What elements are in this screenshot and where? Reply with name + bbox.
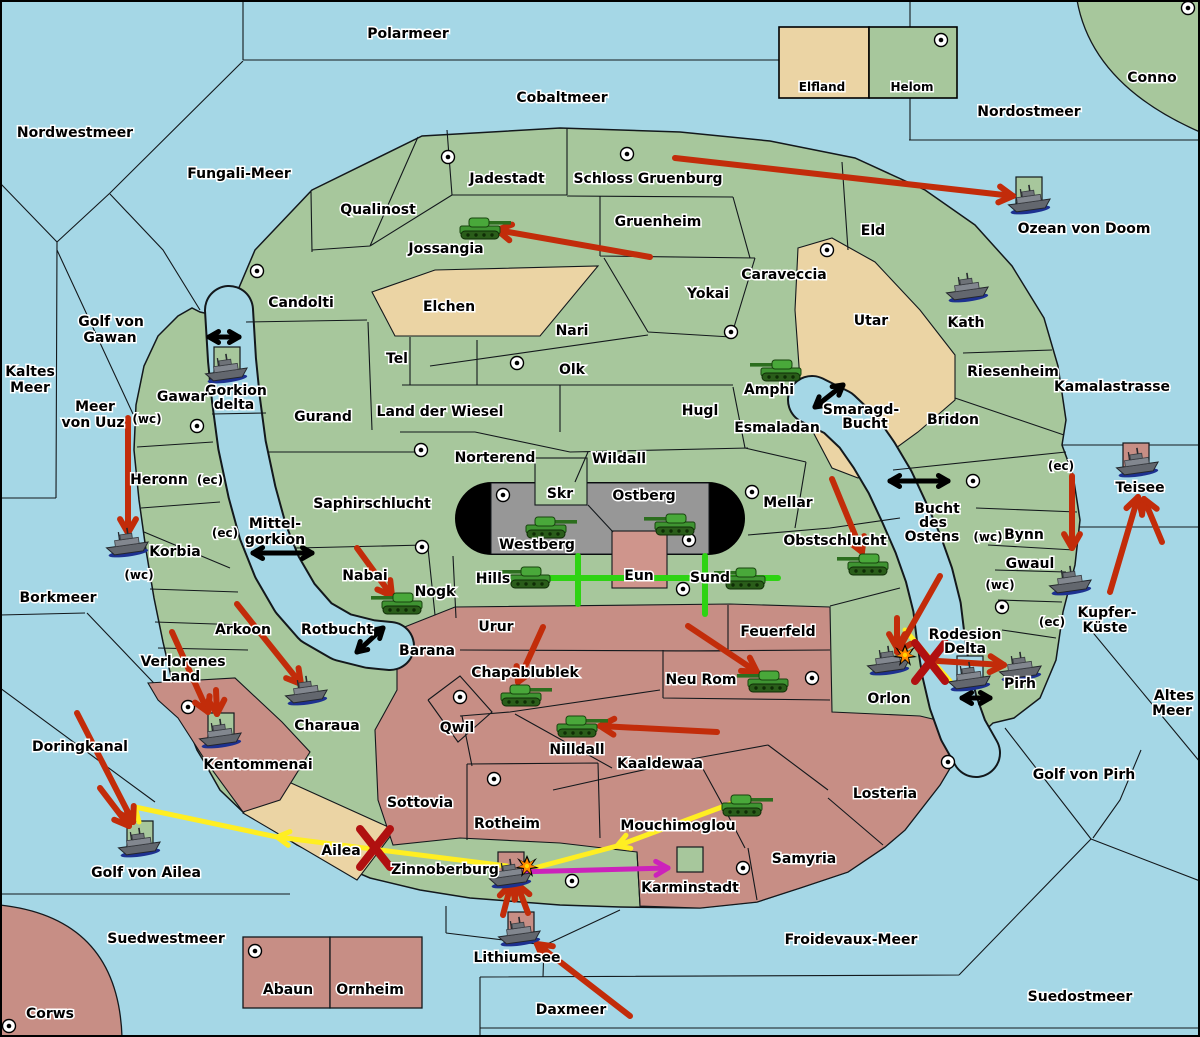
label-zinnoberburg: Zinnoberburg xyxy=(391,862,499,878)
game-map-window: PolarmeerNordwestmeerCobaltmeerNordostme… xyxy=(0,0,1200,1037)
label-gurand: Gurand xyxy=(294,409,352,425)
label-barana: Barana xyxy=(399,643,455,659)
label-nordostmeer: Nordostmeer xyxy=(977,104,1080,120)
label-tel: Tel xyxy=(386,351,408,367)
label-borkmeer: Borkmeer xyxy=(20,590,97,606)
label-ec-heronn: (ec) xyxy=(197,473,223,487)
city-marker-2 xyxy=(935,34,948,47)
label-bucht-des-ostens-3: Ostens xyxy=(905,529,960,545)
label-kath: Kath xyxy=(948,315,985,331)
label-candolti: Candolti xyxy=(268,295,334,311)
label-daxmeer: Daxmeer xyxy=(536,1002,607,1018)
label-amphi: Amphi xyxy=(744,382,794,398)
city-marker-5 xyxy=(511,357,524,370)
label-nari: Nari xyxy=(556,323,589,339)
label-ec-pirh: (ec) xyxy=(1039,615,1065,629)
label-verlorenes-land-2: Land xyxy=(162,669,200,685)
label-olk: Olk xyxy=(559,362,586,378)
label-smaragd-bucht-2: Bucht xyxy=(842,416,888,432)
city-marker-25 xyxy=(488,773,501,786)
label-mellar: Mellar xyxy=(763,495,812,511)
label-karminstadt: Karminstadt xyxy=(641,880,739,896)
label-nilldall: Nilldall xyxy=(549,742,604,758)
label-mittelgorkion-1: Mittel- xyxy=(249,516,301,532)
label-wc-korbia: (wc) xyxy=(124,568,153,582)
label-ostberg: Ostberg xyxy=(612,488,675,504)
label-golf-von-ailea: Golf von Ailea xyxy=(91,865,201,881)
city-marker-8 xyxy=(415,444,428,457)
label-verlorenes-land-1: Verlorenes xyxy=(140,654,225,670)
label-elchen: Elchen xyxy=(423,299,475,315)
city-marker-13 xyxy=(454,691,467,704)
label-ailea: Ailea xyxy=(321,843,360,859)
city-marker-14 xyxy=(967,475,980,488)
label-schloss-gruenburg: Schloss Gruenburg xyxy=(573,171,722,187)
city-marker-3 xyxy=(1182,2,1195,15)
label-gawar: Gawar xyxy=(157,389,207,405)
label-meer-von-uuz-2: von Uuz xyxy=(61,415,124,431)
label-conno: Conno xyxy=(1127,70,1177,86)
label-sottovia: Sottovia xyxy=(387,795,453,811)
label-saphirschlucht: Saphirschlucht xyxy=(313,496,431,512)
label-meer-von-uuz-1: Meer xyxy=(75,399,115,415)
arrowhead xyxy=(380,628,383,638)
label-kaaldewaa: Kaaldewaa xyxy=(617,756,703,772)
label-abaun: Abaun xyxy=(263,982,313,998)
label-korbia: Korbia xyxy=(149,544,200,560)
label-neu-rom: Neu Rom xyxy=(665,672,736,688)
label-fungali-meer: Fungali-Meer xyxy=(187,166,291,182)
city-marker-21 xyxy=(942,756,955,769)
label-legend-helom: Helom xyxy=(890,80,933,94)
label-rodesion-delta-2: Delta xyxy=(944,641,986,657)
label-mouchimoglou: Mouchimoglou xyxy=(620,818,735,834)
label-lithiumsee: Lithiumsee xyxy=(473,950,560,966)
label-losteria: Losteria xyxy=(853,786,917,802)
label-charaua: Charaua xyxy=(294,718,359,734)
label-pirh: Pirh xyxy=(1004,676,1036,692)
label-golf-von-gawan-2: Gawan xyxy=(83,330,136,346)
city-marker-22 xyxy=(249,945,262,958)
city-marker-12 xyxy=(416,541,429,554)
label-teisee: Teisee xyxy=(1115,480,1164,496)
label-riesenheim: Riesenheim xyxy=(967,364,1059,380)
city-marker-15 xyxy=(996,601,1009,614)
label-samyria: Samyria xyxy=(772,851,836,867)
label-eun: Eun xyxy=(624,568,654,584)
label-norterend: Norterend xyxy=(455,450,536,466)
label-wc-gawar: (wc) xyxy=(132,412,161,426)
label-ozean-von-doom: Ozean von Doom xyxy=(1018,221,1151,237)
city-marker-7 xyxy=(821,244,834,257)
city-marker-11 xyxy=(677,583,690,596)
city-marker-6 xyxy=(725,326,738,339)
label-doringkanal: Doringkanal xyxy=(32,739,128,755)
label-arkoon: Arkoon xyxy=(215,622,271,638)
label-cobaltmeer: Cobaltmeer xyxy=(516,90,607,106)
city-marker-0 xyxy=(442,151,455,164)
label-ec-bynn-north: (ec) xyxy=(1048,459,1074,473)
city-marker-1 xyxy=(621,148,634,161)
label-qualinost: Qualinost xyxy=(340,202,416,218)
label-gruenheim: Gruenheim xyxy=(615,214,702,230)
label-rotbucht: Rotbucht xyxy=(301,622,373,638)
label-wc-gwaul: (wc) xyxy=(985,578,1014,592)
label-kaltes-meer-2: Meer xyxy=(10,380,50,396)
label-wc-bynn: (wc) xyxy=(973,530,1002,544)
label-skr: Skr xyxy=(547,486,573,502)
label-jossangia: Jossangia xyxy=(407,241,483,257)
city-marker-20 xyxy=(737,862,750,875)
label-utar: Utar xyxy=(854,313,889,329)
label-kupfer-kueste-1: Kupfer- xyxy=(1078,605,1137,621)
label-land-der-wiesel: Land der Wiesel xyxy=(377,404,504,420)
label-mittelgorkion-2: gorkion xyxy=(245,532,305,548)
label-westberg: Westberg xyxy=(499,537,575,553)
label-orlon: Orlon xyxy=(867,691,910,707)
label-froidevaux-meer: Froidevaux-Meer xyxy=(785,932,918,948)
label-golf-von-pirh: Golf von Pirh xyxy=(1033,767,1135,783)
label-urur: Urur xyxy=(478,619,513,635)
label-ornheim: Ornheim xyxy=(336,982,404,998)
label-bridon: Bridon xyxy=(927,412,979,428)
arrowhead xyxy=(357,642,360,652)
label-bynn: Bynn xyxy=(1004,527,1044,543)
city-marker-9 xyxy=(497,489,510,502)
label-nabai: Nabai xyxy=(342,568,387,584)
city-marker-19 xyxy=(566,875,579,888)
arrowhead xyxy=(741,671,757,672)
city-marker-4 xyxy=(251,265,264,278)
label-feuerfeld: Feuerfeld xyxy=(740,624,815,640)
label-ec-korbia: (ec) xyxy=(212,526,238,540)
label-hills: Hills xyxy=(476,571,510,587)
label-sund: Sund xyxy=(690,570,730,586)
label-corws: Corws xyxy=(26,1006,74,1022)
city-marker-23 xyxy=(3,1020,16,1033)
territory-map-canvas[interactable]: PolarmeerNordwestmeerCobaltmeerNordostme… xyxy=(0,0,1200,1037)
label-esmaladan: Esmaladan xyxy=(734,420,820,436)
label-heronn: Heronn xyxy=(130,472,188,488)
label-obstschlucht: Obstschlucht xyxy=(783,533,887,549)
label-altes-meer-2: Meer xyxy=(1152,703,1192,719)
label-kaltes-meer-1: Kaltes xyxy=(5,364,55,380)
label-suedostmeer: Suedostmeer xyxy=(1028,989,1133,1005)
label-suedwestmeer: Suedwestmeer xyxy=(107,931,225,947)
box-karminstadt[interactable] xyxy=(677,847,703,872)
city-marker-24 xyxy=(191,420,204,433)
city-marker-16 xyxy=(806,672,819,685)
label-nordwestmeer: Nordwestmeer xyxy=(17,125,133,141)
label-legend-elfland: Elfland xyxy=(799,80,845,94)
label-hugl: Hugl xyxy=(682,403,719,419)
label-nogk: Nogk xyxy=(415,584,456,600)
label-kupfer-kueste-2: Küste xyxy=(1082,620,1127,636)
city-marker-17 xyxy=(746,486,759,499)
label-golf-von-gawan-1: Golf von xyxy=(78,314,144,330)
label-rotheim: Rotheim xyxy=(474,816,540,832)
label-jadestadt: Jadestadt xyxy=(468,171,545,187)
label-yokai: Yokai xyxy=(686,286,729,302)
label-wildall: Wildall xyxy=(592,451,646,467)
label-chapablublek: Chapablublek xyxy=(471,665,579,681)
arrowhead xyxy=(537,944,553,946)
label-caraveccia: Caraveccia xyxy=(741,267,827,283)
label-kentommenai: Kentommenai xyxy=(203,757,312,773)
label-polarmeer: Polarmeer xyxy=(367,26,449,42)
label-eld: Eld xyxy=(861,223,885,239)
label-qwil: Qwil xyxy=(440,720,474,736)
label-gorkion-delta-2: delta xyxy=(214,397,254,413)
label-altes-meer-1: Altes xyxy=(1154,688,1194,704)
label-kamalastrasse: Kamalastrasse xyxy=(1054,379,1170,395)
label-gwaul: Gwaul xyxy=(1006,556,1055,572)
